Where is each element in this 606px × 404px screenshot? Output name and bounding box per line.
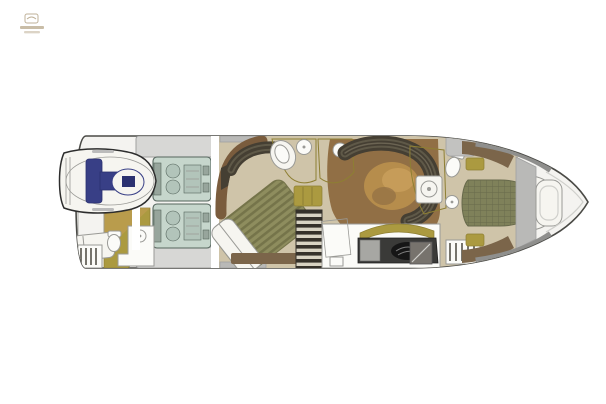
forward-mirror-cabinet <box>410 242 432 264</box>
engine-cylinder <box>166 227 180 241</box>
crew-toilet <box>108 231 122 252</box>
engine-fitting <box>203 230 209 239</box>
shower-drain <box>427 187 431 191</box>
engine-starboard <box>153 157 211 201</box>
deck-hatch-top <box>136 136 214 157</box>
engine-block <box>153 157 211 201</box>
sink-drain <box>451 201 454 204</box>
galley-appliance <box>360 240 380 261</box>
engine-cylinder <box>166 180 180 194</box>
tender-label-bottom <box>92 208 114 211</box>
salon-table <box>364 162 420 210</box>
step-landing <box>294 186 322 206</box>
engine-fitting <box>203 166 209 175</box>
shower <box>416 176 442 203</box>
engine-cylinder <box>166 211 180 225</box>
nightstand <box>466 234 484 246</box>
nightstand <box>466 158 484 170</box>
tender-dinghy <box>60 149 157 213</box>
bow-sunpad <box>536 180 562 226</box>
yacht-deck-plan <box>0 0 606 404</box>
engine-fitting <box>203 213 209 222</box>
companionway-stairs <box>296 210 322 268</box>
bow-bulkhead <box>516 157 536 249</box>
watermark-text-row <box>20 26 44 29</box>
tender-console-seat <box>86 159 102 203</box>
engine-cylinder <box>166 164 180 178</box>
sink-drain <box>303 146 306 149</box>
engine-block <box>153 204 211 248</box>
engine-end-cap <box>154 210 161 242</box>
watermark-subtext-row <box>24 31 40 33</box>
table-grain <box>372 187 396 205</box>
engine-fitting <box>203 183 209 192</box>
page <box>0 0 606 404</box>
toilet-bowl <box>108 235 121 252</box>
tender-dash <box>122 176 135 187</box>
engine-port <box>153 204 211 248</box>
aft-cabinet <box>231 253 299 264</box>
tender-label-top <box>92 150 114 153</box>
